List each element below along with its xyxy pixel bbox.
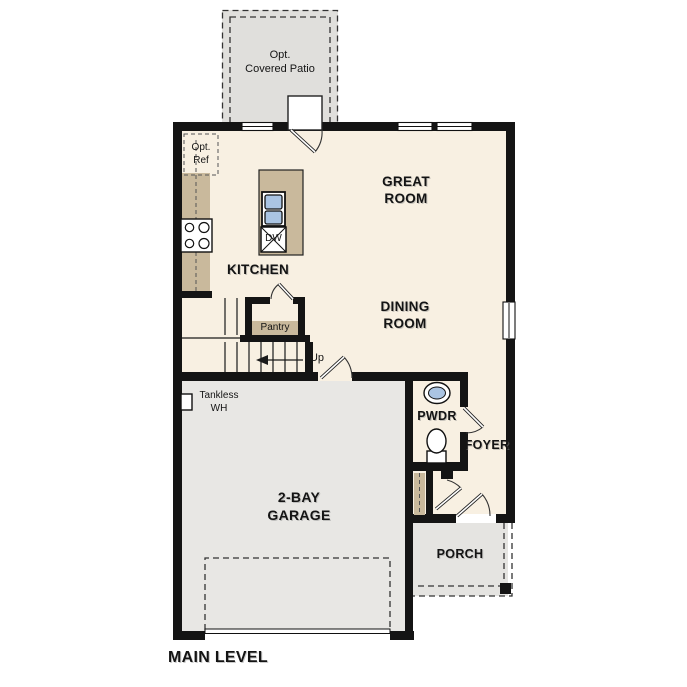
pantry-label: Pantry [252,322,298,335]
wall-pantry-bottom [240,335,310,342]
floor-plan: Opt. Covered Patio GREAT ROOM KITCHEN DI… [0,0,687,687]
stair-up-label: Up [305,352,329,366]
powder-sink-basin [429,387,446,399]
wall-garage-top-left [182,372,318,381]
wall-garage-bottom-left [173,631,205,640]
porch-column [500,583,511,594]
dining-room-label: DINING ROOM [362,299,448,333]
foyer-label: FOYER [461,438,513,454]
optional-ref-label: Opt. Ref [184,142,218,167]
toilet-bowl [427,429,446,453]
tankless-water-heater [181,394,192,410]
dishwasher-label: DW [261,233,286,246]
patio-label: Opt. Covered Patio [225,49,335,77]
powder-label: PWDR [413,409,461,425]
wall-garage-top-right [352,372,413,381]
porch-label: PORCH [416,547,504,563]
great-room-label: GREAT ROOM [360,174,452,208]
wall-pantry-top-left [252,297,270,304]
kitchen-label: KITCHEN [212,262,304,279]
garage-label: 2-BAY GARAGE [240,489,358,524]
plan-title: MAIN LEVEL [168,648,308,668]
floor-plan-drawing [0,0,687,687]
wall-powder-top [413,372,468,381]
wall-garage-bottom-right [390,631,414,640]
patio-door-jamb [288,96,322,130]
wall-left [173,131,182,640]
sink-bowl-bottom [265,211,282,224]
tankless-wh-label: Tankless WH [192,390,246,415]
sink-bowl-top [265,195,282,209]
wall-closet-right [426,471,433,517]
wall-garage-right [405,381,413,640]
wall-powder-right-upper [460,381,468,407]
wall-foyer-bottom-right [496,514,515,523]
wall-entry-stub [441,471,453,479]
wall-pantry-top-right [293,297,305,304]
garage-door-opening [205,629,390,634]
wall-kitchen-bottom [182,291,212,298]
